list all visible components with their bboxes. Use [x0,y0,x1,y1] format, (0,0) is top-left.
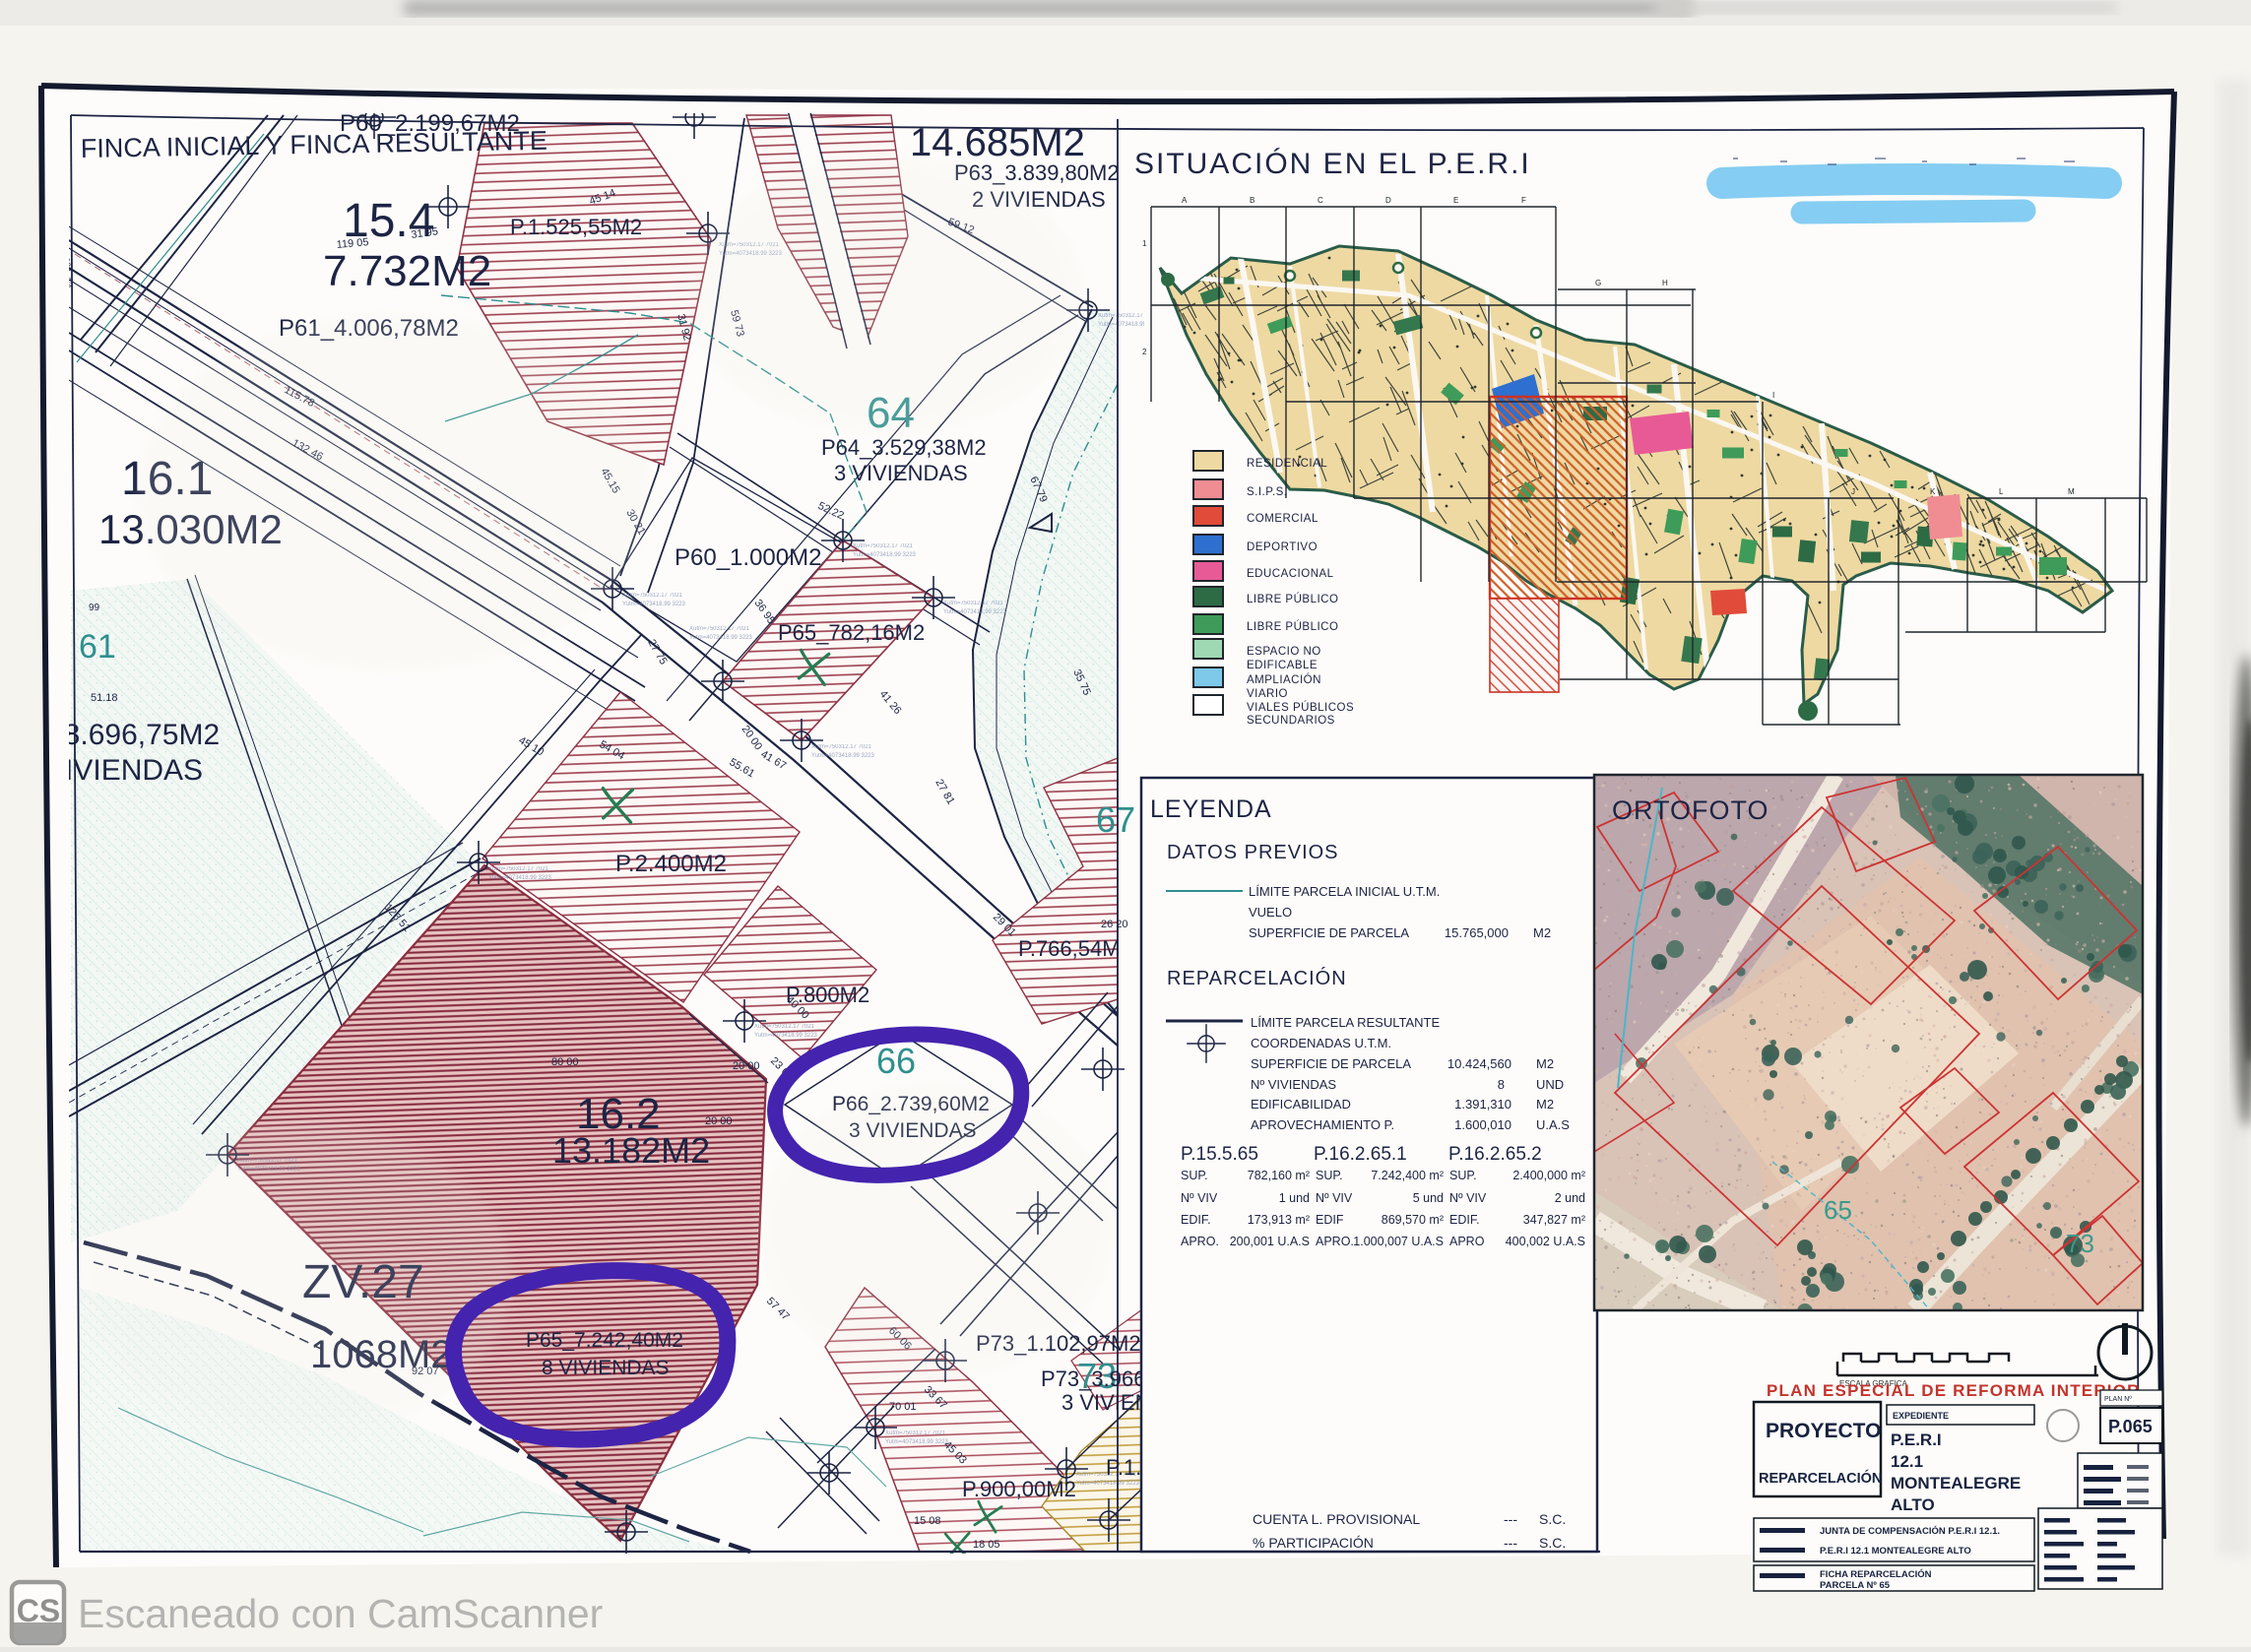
svg-text:P.800M2: P.800M2 [786,983,869,1007]
svg-text:P.766,54M: P.766,54M [1018,936,1121,961]
svg-text:CUENTA L. PROVISIONAL: CUENTA L. PROVISIONAL [1253,1511,1420,1527]
svg-text:1.000,007 U.A.S: 1.000,007 U.A.S [1353,1235,1444,1248]
svg-text:51.18: 51.18 [91,692,118,704]
svg-text:782,160 m²: 782,160 m² [1248,1169,1310,1182]
svg-text:U.A.S: U.A.S [1536,1117,1570,1132]
svg-text:1: 1 [1142,239,1147,248]
svg-text:PLAN Nº: PLAN Nº [2104,1396,2132,1403]
svg-text:S.C.: S.C. [1539,1535,1566,1551]
svg-text:SECUNDARIOS: SECUNDARIOS [1247,715,1335,727]
svg-text:Yutm=4073418.99 3223: Yutm=4073418.99 3223 [853,552,917,558]
svg-text:EDIFICABLE: EDIFICABLE [1247,660,1318,671]
svg-text:AMPLIACIÓN: AMPLIACIÓN [1247,673,1321,686]
svg-text:A: A [1182,196,1188,205]
svg-text:P.E.R.I: P.E.R.I [1891,1430,1942,1449]
svg-text:JUNTA DE COMPENSACIÓN P.E.R.I: JUNTA DE COMPENSACIÓN P.E.R.I 12.1. [1820,1525,2000,1537]
svg-text:7.242,400 m²: 7.242,400 m² [1371,1169,1444,1182]
svg-text:70 01: 70 01 [889,1401,917,1413]
svg-text:SUPERFICIE DE PARCELA: SUPERFICIE DE PARCELA [1251,1056,1411,1071]
svg-text:DEPORTIVO: DEPORTIVO [1247,541,1318,553]
svg-text:PLAN ESPECIAL DE REFORMA INTER: PLAN ESPECIAL DE REFORMA INTERIOR [1767,1381,2141,1400]
svg-text:SUP.: SUP. [1449,1169,1477,1182]
svg-text:VIALES PÚBLICOS: VIALES PÚBLICOS [1247,701,1354,714]
svg-text:67: 67 [1096,799,1135,840]
svg-text:18.696,75M2: 18.696,75M2 [47,719,220,751]
svg-text:B: B [1250,196,1254,205]
svg-text:P.16.2.65.1: P.16.2.65.1 [1314,1144,1407,1165]
svg-text:P.15.5.65: P.15.5.65 [1181,1144,1258,1165]
svg-text:CS: CS [17,1593,60,1628]
svg-text:61: 61 [79,628,116,666]
svg-text:DATOS PREVIOS: DATOS PREVIOS [1167,842,1339,863]
svg-text:1 und: 1 und [1279,1191,1310,1205]
svg-text:VIARIO: VIARIO [1247,688,1288,700]
svg-text:347,827 m²: 347,827 m² [1523,1213,1585,1227]
svg-text:MONTEALEGRE: MONTEALEGRE [1891,1474,2021,1493]
svg-text:H: H [1662,279,1668,287]
svg-text:Nº VIV: Nº VIV [1449,1191,1487,1205]
svg-text:65: 65 [1824,1195,1852,1225]
svg-text:P64_3.529,38M2: P64_3.529,38M2 [821,435,987,460]
svg-text:SITUACIÓN EN EL P.E.R.I: SITUACIÓN EN EL P.E.R.I [1134,148,1531,180]
svg-text:ALTO: ALTO [1891,1495,1935,1514]
svg-text:Yutm=4073418.99 3223: Yutm=4073418.99 3223 [622,602,686,607]
svg-text:G: G [1595,279,1601,287]
svg-text:Nº VIVIENDAS: Nº VIVIENDAS [1251,1077,1336,1092]
svg-text:P.065: P.065 [2108,1417,2153,1436]
svg-text:VUELO: VUELO [1249,905,1292,920]
svg-text:Yutm=4073418.99 3223: Yutm=4073418.99 3223 [689,635,753,641]
svg-text:Xutm=750312.17 7021: Xutm=750312.17 7021 [943,601,1004,606]
svg-text:18 05: 18 05 [973,1539,1000,1551]
svg-text:LIBRE PÚBLICO: LIBRE PÚBLICO [1247,620,1338,633]
svg-text:LIBRE PÚBLICO: LIBRE PÚBLICO [1247,593,1338,605]
svg-text:EDIFICABILIDAD: EDIFICABILIDAD [1251,1097,1351,1112]
svg-text:E: E [1453,196,1458,205]
svg-text:P60_2.199,67M2: P60_2.199,67M2 [340,110,520,137]
svg-text:S.I.P.S.: S.I.P.S. [1247,486,1288,498]
svg-text:---: --- [1504,1535,1517,1551]
svg-text:99: 99 [89,603,100,613]
svg-text:66: 66 [876,1041,916,1081]
svg-text:APRO: APRO [1449,1235,1485,1248]
svg-text:Xutm=750312.17 7021: Xutm=750312.17 7021 [689,626,750,632]
svg-text:P.16.2.65.2: P.16.2.65.2 [1448,1144,1542,1165]
svg-text:200,001 U.A.S: 200,001 U.A.S [1230,1235,1310,1248]
svg-text:173,913 m²: 173,913 m² [1248,1213,1310,1227]
svg-text:D: D [1385,196,1391,205]
svg-text:73: 73 [2066,1229,2094,1258]
svg-text:Xutm=750312.17 7021: Xutm=750312.17 7021 [622,593,683,599]
svg-text:15.4: 15.4 [343,195,434,247]
svg-text:P.900,00M2: P.900,00M2 [962,1477,1076,1501]
svg-text:Xutm=750312.17 7021: Xutm=750312.17 7021 [488,866,549,872]
svg-text:ORTOFOTO: ORTOFOTO [1612,795,1769,825]
svg-text:7.732M2: 7.732M2 [323,247,491,295]
svg-text:EDIF.: EDIF. [1181,1213,1211,1227]
svg-text:P.2.400M2: P.2.400M2 [615,851,727,877]
svg-text:2 und: 2 und [1555,1191,1585,1205]
svg-text:26 20: 26 20 [1101,919,1128,930]
svg-text:M2: M2 [1536,1097,1554,1112]
svg-text:869,570 m²: 869,570 m² [1382,1213,1444,1227]
svg-text:REPARCELACIÓN: REPARCELACIÓN [1167,967,1347,989]
svg-text:J: J [1851,487,1855,496]
svg-text:EXPEDIENTE: EXPEDIENTE [1893,1411,1949,1421]
svg-text:% PARTICIPACIÓN: % PARTICIPACIÓN [1253,1535,1374,1551]
svg-text:APRO.: APRO. [1316,1235,1354,1248]
svg-text:13.182M2: 13.182M2 [552,1130,710,1171]
svg-text:20 00: 20 00 [733,1060,760,1072]
svg-text:P60_1.000M2: P60_1.000M2 [675,544,821,571]
svg-text:2: 2 [1142,348,1147,356]
svg-text:M2: M2 [1533,925,1551,940]
svg-text:12.1: 12.1 [1891,1452,1923,1471]
svg-text:Yutm=4073418.99 3223: Yutm=4073418.99 3223 [943,609,1007,615]
svg-text:Escaneado con CamScanner: Escaneado con CamScanner [78,1591,603,1636]
svg-text:FICHA REPARCELACIÓN: FICHA REPARCELACIÓN [1820,1568,1932,1580]
svg-text:SUPERFICIE DE PARCELA: SUPERFICIE DE PARCELA [1249,925,1409,940]
svg-text:EDIF: EDIF [1316,1213,1344,1227]
svg-text:C: C [1318,196,1323,205]
svg-text:Yutm=4073418.99 3223: Yutm=4073418.99 3223 [885,1439,949,1445]
svg-text:UND: UND [1536,1077,1564,1092]
svg-text:15.765,000: 15.765,000 [1445,925,1509,940]
svg-text:Nº VIV: Nº VIV [1181,1191,1218,1205]
svg-text:ESPACIO NO: ESPACIO NO [1247,646,1321,658]
svg-text:1.391,310: 1.391,310 [1454,1097,1511,1112]
svg-text:P65_7.242,40M2: P65_7.242,40M2 [526,1329,683,1352]
svg-text:P.1.525,55M2: P.1.525,55M2 [510,215,642,239]
svg-text:10.424,560: 10.424,560 [1447,1056,1511,1071]
svg-text:COORDENADAS U.T.M.: COORDENADAS U.T.M. [1251,1036,1391,1050]
svg-text:REPARCELACIÓN: REPARCELACIÓN [1759,1469,1882,1487]
svg-text:RESIDENCIAL: RESIDENCIAL [1247,458,1327,470]
svg-text:K: K [1930,487,1936,496]
svg-text:F: F [1521,196,1526,205]
svg-text:8 VIVIENDAS: 8 VIVIENDAS [542,1357,670,1379]
svg-text:Yutm=4073418.99 3223: Yutm=4073418.99 3223 [754,1033,818,1039]
svg-text:SUP.: SUP. [1316,1169,1343,1182]
svg-text:80 00: 80 00 [551,1056,579,1068]
svg-text:Nº VIV: Nº VIV [1316,1191,1353,1205]
svg-text:Yutm=4073418.99 3223: Yutm=4073418.99 3223 [488,875,552,881]
svg-text:S.C.: S.C. [1539,1511,1566,1527]
svg-text:EDUCACIONAL: EDUCACIONAL [1247,568,1334,580]
svg-text:Xutm=750312.17 7021: Xutm=750312.17 7021 [811,744,872,750]
svg-text:---: --- [1504,1511,1517,1527]
svg-text:LEYENDA: LEYENDA [1150,795,1272,823]
svg-text:I: I [1772,391,1774,400]
svg-text:M2: M2 [1536,1056,1554,1071]
svg-text:SUP.: SUP. [1181,1169,1208,1182]
svg-text:PROYECTO: PROYECTO [1766,1420,1881,1442]
svg-text:400,002 U.A.S: 400,002 U.A.S [1506,1235,1585,1248]
svg-text:APRO.: APRO. [1181,1235,1219,1248]
svg-text:3 VIVIENDAS: 3 VIVIENDAS [834,461,968,485]
svg-text:1.600,010: 1.600,010 [1454,1117,1511,1132]
svg-text:5 und: 5 und [1413,1191,1444,1205]
svg-text:LÍMITE PARCELA RESULTANTE: LÍMITE PARCELA RESULTANTE [1251,1015,1440,1030]
svg-text:P65_782,16M2: P65_782,16M2 [778,620,925,645]
svg-text:LÍMITE PARCELA INICIAL U.T.M.: LÍMITE PARCELA INICIAL U.T.M. [1249,884,1440,899]
svg-text:EDIF.: EDIF. [1449,1213,1480,1227]
svg-text:Xutm=750312.17 7021: Xutm=750312.17 7021 [853,543,914,549]
svg-text:Xutm=750312.17 7021: Xutm=750312.17 7021 [754,1024,815,1030]
svg-text:20 00: 20 00 [705,1115,733,1127]
svg-text:P.E.R.I 12.1 MONTEALEGRE ALTO: P.E.R.I 12.1 MONTEALEGRE ALTO [1820,1546,1971,1557]
svg-text:L: L [1999,487,2004,496]
svg-text:COMERCIAL: COMERCIAL [1247,513,1318,525]
svg-text:Yutm=4073418.99 3223: Yutm=4073418.99 3223 [811,753,875,759]
svg-text:VIVIENDAS: VIVIENDAS [45,754,203,787]
svg-text:Yutm=4073418.99 3223: Yutm=4073418.99 3223 [1076,1481,1140,1487]
svg-text:2.400,000 m²: 2.400,000 m² [1512,1169,1585,1182]
svg-text:M: M [2068,487,2075,496]
svg-text:Xutm=750312.17 7021: Xutm=750312.17 7021 [885,1430,946,1436]
svg-text:PARCELA Nº 65: PARCELA Nº 65 [1820,1580,1891,1591]
svg-text:15 08: 15 08 [914,1515,941,1527]
svg-text:APROVECHAMIENTO P.: APROVECHAMIENTO P. [1251,1117,1394,1132]
svg-text:8: 8 [1498,1077,1505,1092]
